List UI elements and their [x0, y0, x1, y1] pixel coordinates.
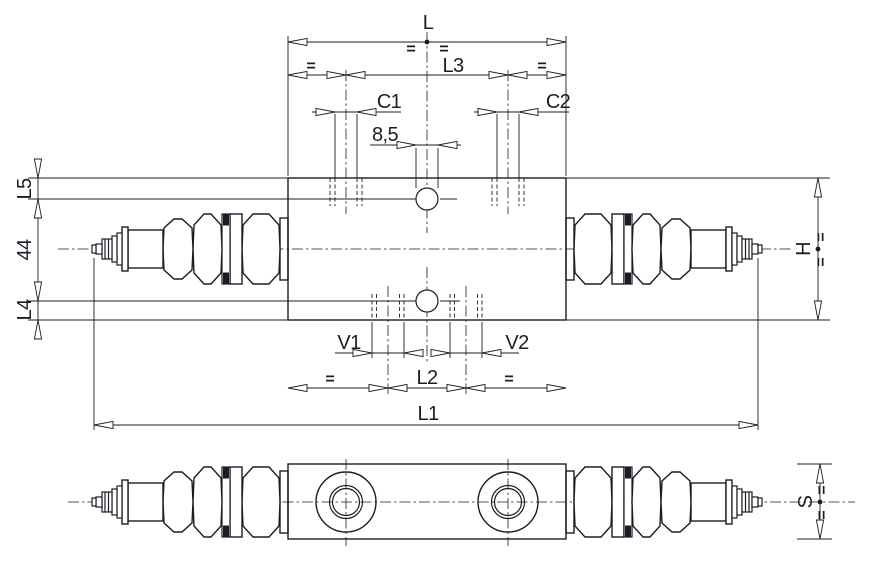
cartridge-valve-left	[92, 467, 288, 537]
center-symmetry-dot	[425, 40, 430, 45]
dim-label-L1: L1	[417, 403, 439, 425]
dim-label-V2: V2	[505, 332, 529, 354]
dim-label-hole-diameter: 8,5	[372, 124, 398, 146]
equals-mark: =	[504, 371, 513, 388]
dim-label-L4: L4	[14, 299, 36, 321]
valve-block-drawing: L = = = L3 = C1 C2 8,5	[0, 0, 871, 566]
side-view: S = =	[68, 459, 855, 546]
equals-mark: =	[814, 485, 831, 494]
arrowhead	[547, 38, 566, 45]
cartridge-valve-right	[566, 467, 762, 537]
dim-label-C1: C1	[377, 91, 402, 113]
dim-label-V1: V1	[337, 332, 361, 354]
equals-mark: =	[814, 510, 831, 519]
mounting-hole-bottom	[416, 290, 438, 312]
cartridge-valve-right	[566, 214, 762, 284]
dim-label-L5: L5	[14, 178, 36, 200]
dim-label-L2: L2	[416, 367, 438, 389]
equals-mark: =	[813, 257, 830, 266]
equals-mark: =	[406, 41, 415, 58]
center-symmetry-dot	[816, 247, 821, 252]
dim-label-C2: C2	[546, 91, 571, 113]
equals-mark: =	[325, 371, 334, 388]
cartridge-valve-left	[92, 214, 288, 284]
center-symmetry-dot	[818, 500, 823, 505]
dim-label-S: S	[795, 495, 817, 508]
dim-label-44: 44	[14, 239, 36, 261]
equals-mark: =	[306, 58, 315, 75]
equals-mark: =	[537, 58, 546, 75]
equals-mark: =	[813, 232, 830, 241]
arrowhead	[288, 38, 307, 45]
mounting-hole-top	[416, 188, 438, 210]
dimensions-top-view: L = = = L3 = C1 C2 8,5	[14, 12, 830, 429]
technical-drawing-page: L = = = L3 = C1 C2 8,5	[0, 0, 871, 566]
dim-label-L: L	[423, 12, 434, 34]
dim-label-L3: L3	[442, 55, 464, 77]
dim-label-H: H	[793, 242, 815, 256]
